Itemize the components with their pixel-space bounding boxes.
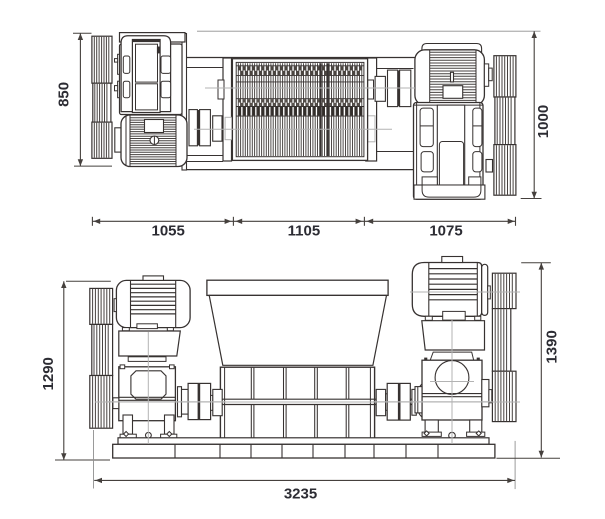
svg-text:1390: 1390 — [543, 330, 560, 363]
svg-text:1105: 1105 — [288, 222, 321, 239]
svg-text:850: 850 — [55, 82, 72, 107]
svg-text:3235: 3235 — [284, 485, 317, 502]
svg-text:1055: 1055 — [152, 222, 185, 239]
svg-text:1290: 1290 — [40, 357, 57, 390]
svg-text:1075: 1075 — [429, 222, 462, 239]
svg-text:1000: 1000 — [535, 105, 552, 138]
